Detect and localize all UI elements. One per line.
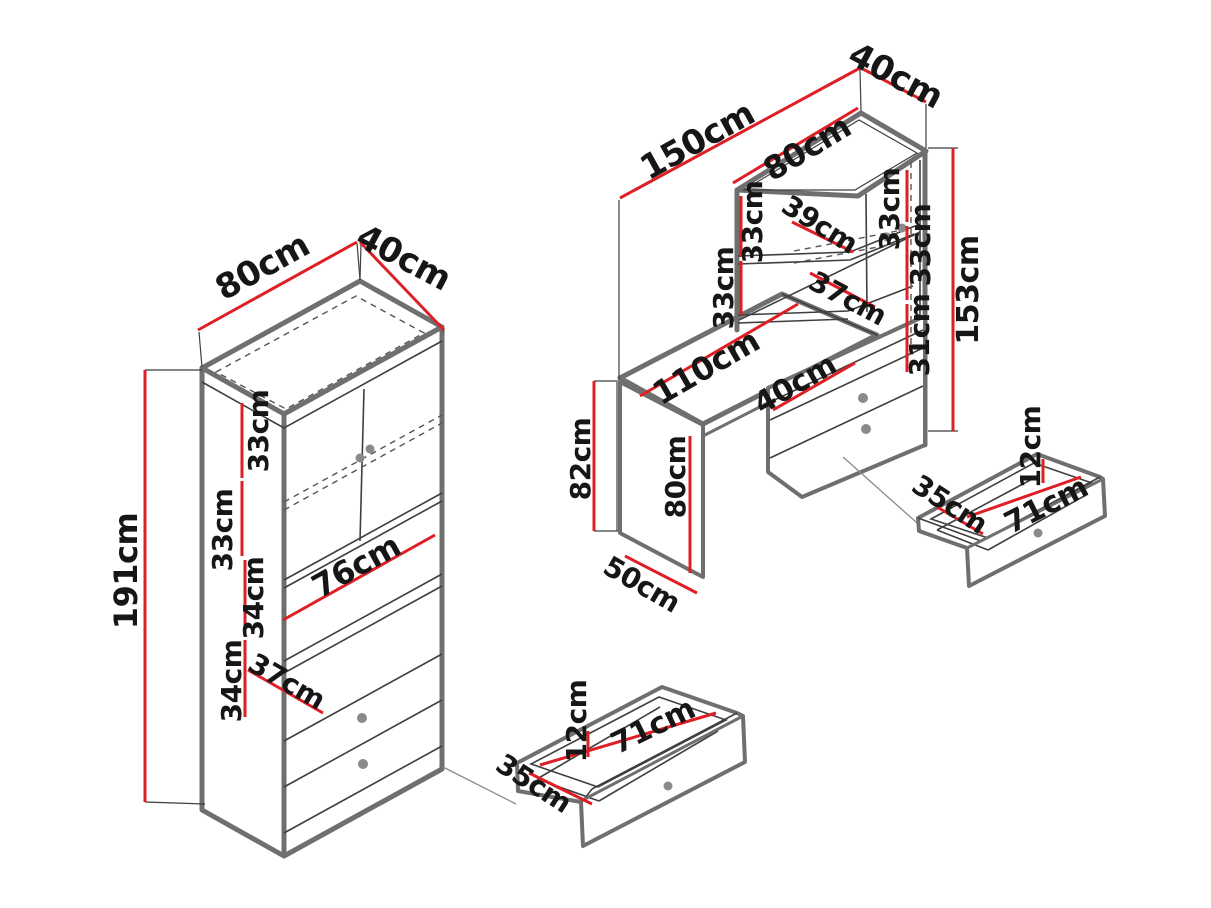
dim-desk-total-height: 153cm	[951, 235, 986, 344]
dim-cabinet-width: 80cm	[209, 225, 317, 309]
desk-drawer: 12cm 35cm 71cm	[906, 406, 1105, 586]
dim-cabinet-section-2: 33cm	[206, 489, 239, 572]
desk-drawer-knob	[858, 393, 868, 403]
desk-drawer-knob	[861, 424, 871, 434]
dim-desk-top-depth: 40cm	[842, 35, 950, 118]
dim-inner-leg-height: 80cm	[659, 436, 692, 519]
dim-side-panel-height: 82cm	[564, 418, 597, 501]
dim-hutch-right-section-1: 33cm	[904, 204, 937, 287]
diagram-canvas: 80cm 40cm 191cm 33cm 33cm 34cm 34cm 76cm…	[0, 0, 1211, 908]
cabinet-drawer-front-knob	[664, 782, 673, 791]
dim-desk-total-width: 150cm	[634, 93, 762, 188]
cabinet-drawer-knob	[357, 713, 367, 723]
furniture-dimensions-diagram: 80cm 40cm 191cm 33cm 33cm 34cm 34cm 76cm…	[0, 0, 1211, 908]
dim-hutch-shelf-39: 39cm	[776, 189, 864, 261]
dim-cabinet-height: 191cm	[107, 513, 145, 630]
dim-cabinet-section-4: 34cm	[215, 640, 248, 723]
dim-hutch-left-section-2: 33cm	[707, 247, 740, 330]
cabinet-drawer: 12cm 71cm 35cm	[490, 680, 745, 846]
dim-cabinet-section-3: 34cm	[237, 557, 270, 640]
cabinet-door-knob	[356, 454, 365, 463]
dim-cabinet-drawer-height: 12cm	[560, 680, 593, 763]
dim-hutch-door-section: 33cm	[873, 168, 906, 251]
dim-cabinet-section-1: 33cm	[242, 390, 275, 473]
dim-hutch-right-section-2: 31cm	[903, 294, 936, 377]
cabinet-drawer-knob	[358, 759, 368, 769]
dim-desk-drawer-height: 12cm	[1014, 406, 1047, 489]
dim-hutch-left-section-1: 33cm	[736, 181, 769, 264]
cabinet-door-knob	[366, 445, 375, 454]
